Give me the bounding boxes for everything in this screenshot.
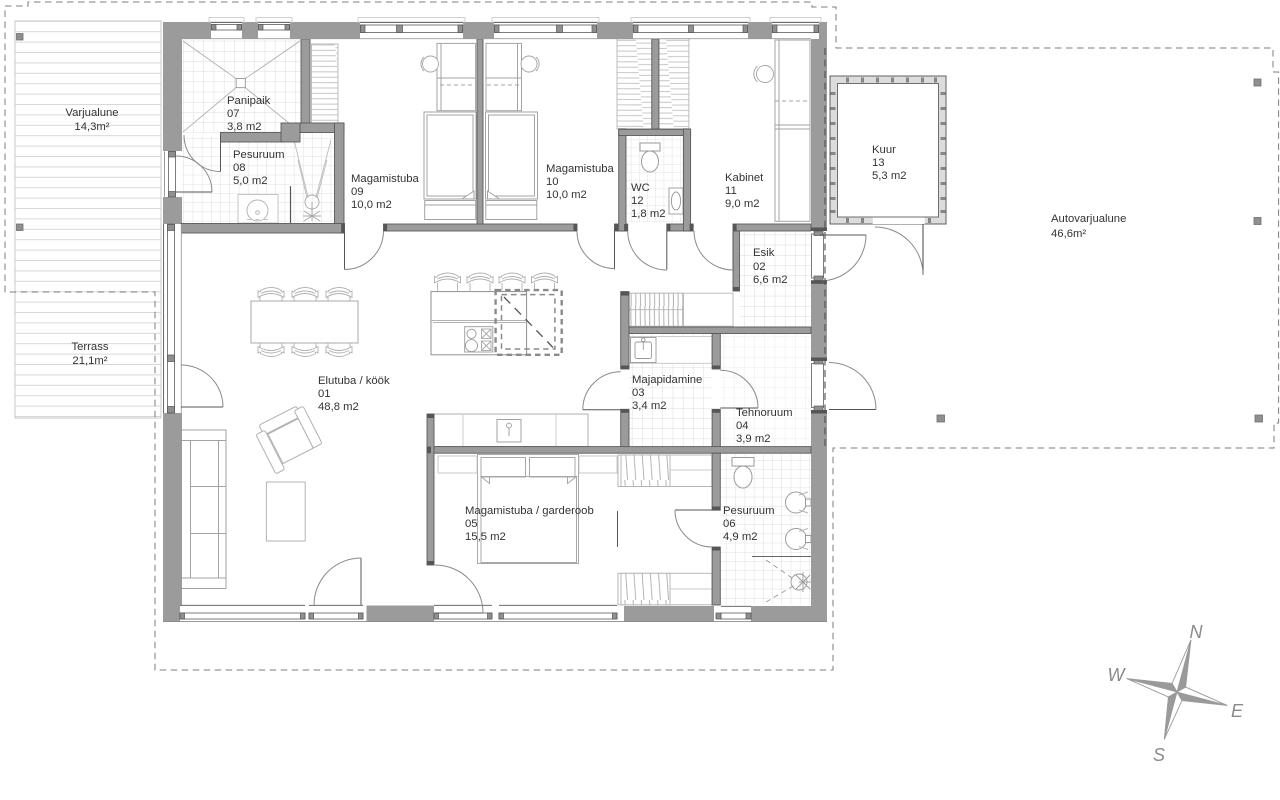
svg-text:E: E bbox=[1231, 701, 1244, 721]
svg-text:05: 05 bbox=[465, 518, 478, 530]
svg-text:10,0 m2: 10,0 m2 bbox=[546, 189, 587, 201]
svg-text:10: 10 bbox=[546, 176, 559, 188]
svg-text:02: 02 bbox=[753, 261, 766, 273]
svg-text:Autovarjualune: Autovarjualune bbox=[1051, 213, 1126, 225]
svg-text:21,1m²: 21,1m² bbox=[72, 355, 107, 367]
svg-text:Tehnoruum: Tehnoruum bbox=[736, 407, 793, 419]
svg-text:3,4 m2: 3,4 m2 bbox=[632, 400, 667, 412]
svg-text:5,0 m2: 5,0 m2 bbox=[233, 175, 268, 187]
svg-text:03: 03 bbox=[632, 387, 645, 399]
svg-text:5,3 m2: 5,3 m2 bbox=[872, 170, 907, 182]
svg-text:1,8 m2: 1,8 m2 bbox=[631, 208, 666, 220]
svg-text:3,9 m2: 3,9 m2 bbox=[736, 433, 771, 445]
svg-text:08: 08 bbox=[233, 162, 246, 174]
svg-text:09: 09 bbox=[351, 186, 364, 198]
svg-text:Magamistuba / garderoob: Magamistuba / garderoob bbox=[465, 505, 594, 517]
svg-text:13: 13 bbox=[872, 157, 885, 169]
svg-text:Pesuruum: Pesuruum bbox=[723, 505, 775, 517]
svg-text:Esik: Esik bbox=[753, 247, 775, 259]
svg-text:WC: WC bbox=[631, 182, 650, 194]
svg-text:Kuur: Kuur bbox=[872, 144, 896, 156]
svg-text:48,8 m2: 48,8 m2 bbox=[318, 401, 359, 413]
svg-text:14,3m²: 14,3m² bbox=[74, 121, 109, 133]
svg-text:9,0 m2: 9,0 m2 bbox=[725, 198, 760, 210]
svg-text:07: 07 bbox=[227, 108, 240, 120]
svg-text:Majapidamine: Majapidamine bbox=[632, 374, 702, 386]
svg-text:06: 06 bbox=[723, 518, 736, 530]
svg-text:46,6m²: 46,6m² bbox=[1051, 228, 1086, 240]
svg-text:Varjualune: Varjualune bbox=[65, 107, 118, 119]
svg-text:3,8 m2: 3,8 m2 bbox=[227, 121, 262, 133]
svg-text:S: S bbox=[1153, 745, 1165, 765]
svg-text:11: 11 bbox=[725, 185, 737, 197]
svg-text:Magamistuba: Magamistuba bbox=[351, 173, 420, 185]
svg-text:10,0 m2: 10,0 m2 bbox=[351, 199, 392, 211]
svg-text:Terrass: Terrass bbox=[71, 341, 108, 353]
svg-text:01: 01 bbox=[318, 388, 331, 400]
svg-text:W: W bbox=[1108, 665, 1127, 685]
svg-text:Magamistuba: Magamistuba bbox=[546, 163, 615, 175]
svg-text:04: 04 bbox=[736, 420, 749, 432]
svg-text:6,6 m2: 6,6 m2 bbox=[753, 274, 788, 286]
svg-text:N: N bbox=[1190, 622, 1204, 642]
svg-text:4,9 m2: 4,9 m2 bbox=[723, 531, 758, 543]
svg-text:12: 12 bbox=[631, 195, 644, 207]
svg-text:Kabinet: Kabinet bbox=[725, 172, 764, 184]
svg-text:Pesuruum: Pesuruum bbox=[233, 149, 285, 161]
svg-text:Elutuba / köök: Elutuba / köök bbox=[318, 375, 390, 387]
svg-text:Panipaik: Panipaik bbox=[227, 95, 271, 107]
svg-text:15,5 m2: 15,5 m2 bbox=[465, 531, 506, 543]
